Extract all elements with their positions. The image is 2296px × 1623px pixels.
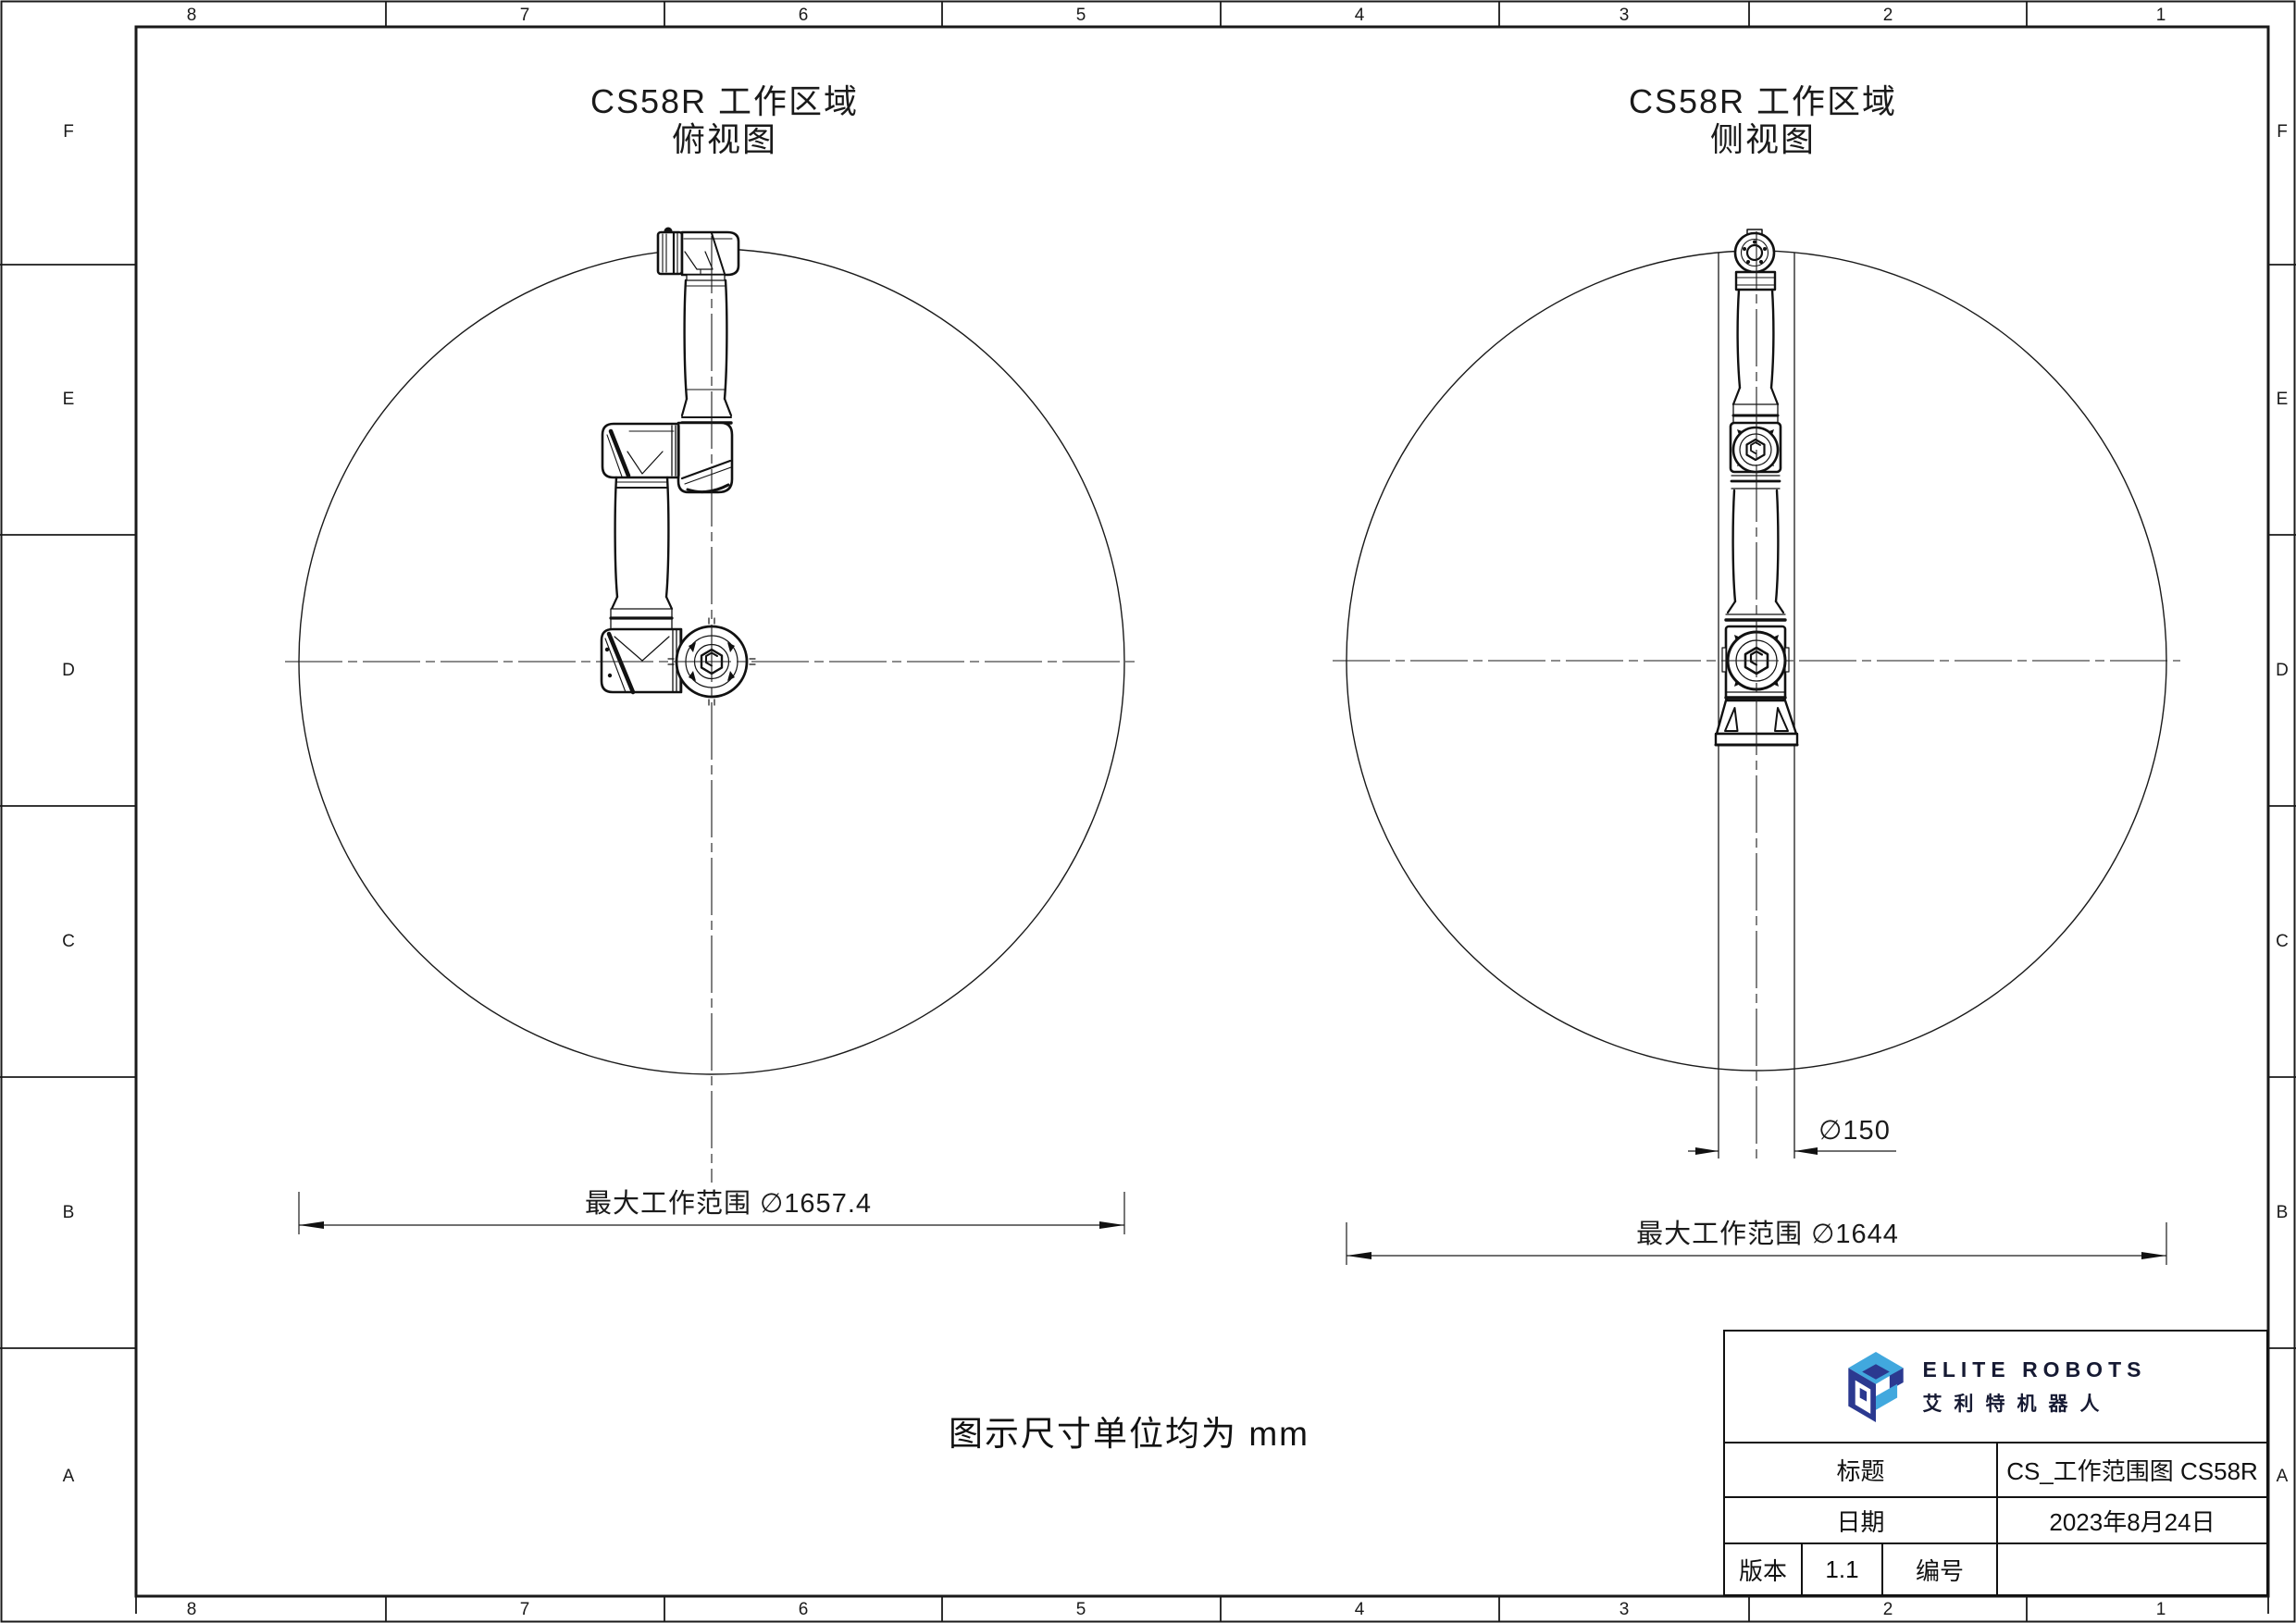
zone-row-left: C: [62, 932, 75, 951]
number-value: [1998, 1544, 2266, 1594]
row-ticks: [0, 265, 2296, 1348]
zone-col-top: 5: [1076, 6, 1086, 25]
zone-col-bottom: 3: [1620, 1600, 1630, 1619]
title-block-version-row: 版本 1.1 编号: [1725, 1544, 2266, 1594]
dim-label-base-diameter: ∅150: [1818, 1116, 1891, 1146]
zone-row-left: B: [63, 1203, 75, 1222]
title-label: 标题: [1725, 1443, 1998, 1496]
zone-row-right: F: [2277, 122, 2288, 142]
number-label: 编号: [1883, 1544, 1998, 1594]
zone-row-left: D: [62, 661, 75, 680]
dimension-base-diameter: [1688, 1147, 1896, 1155]
zone-col-bottom: 8: [187, 1600, 197, 1619]
robot-top-view: [602, 228, 755, 706]
zone-col-top: 7: [520, 6, 530, 25]
top-view-subtitle: 俯视图: [672, 120, 777, 158]
zone-col-top: 2: [1883, 6, 1893, 25]
brand-name-cn: 艾利特机器人: [1923, 1389, 2147, 1417]
zone-col-top: 8: [187, 6, 197, 25]
top-view-title: CS58R 工作区域: [590, 82, 859, 120]
zone-col-top: 3: [1620, 6, 1630, 25]
zone-col-bottom: 1: [2156, 1600, 2166, 1619]
zone-row-right: D: [2276, 661, 2289, 680]
bottom-zone-ticks: [136, 1596, 2268, 1621]
elite-robots-logo-icon: [1845, 1350, 1906, 1424]
zone-row-right: B: [2277, 1203, 2289, 1222]
brand-name-en: ELITE ROBOTS: [1923, 1357, 2147, 1382]
side-view-subtitle: 侧视图: [1710, 120, 1816, 158]
unit-note: 图示尺寸单位均为 mm: [949, 1406, 1309, 1456]
version-value: 1.1: [1803, 1544, 1883, 1594]
title-block-logo-row: ELITE ROBOTS 艾利特机器人: [1725, 1332, 2266, 1443]
zone-row-left: E: [63, 390, 75, 409]
zone-col-bottom: 2: [1883, 1600, 1893, 1619]
top-zone-ticks: [386, 2, 2027, 27]
zone-row-right: A: [2277, 1467, 2289, 1486]
zone-row-right: C: [2276, 932, 2289, 951]
title-block-date-row: 日期 2023年8月24日: [1725, 1498, 2266, 1544]
version-label: 版本: [1725, 1544, 1803, 1594]
date-value: 2023年8月24日: [1998, 1498, 2266, 1542]
side-view-title: CS58R 工作区域: [1629, 82, 1897, 120]
title-block-title-row: 标题 CS_工作范围图 CS58R: [1725, 1443, 2266, 1498]
zone-col-bottom: 5: [1076, 1600, 1086, 1619]
zone-col-top: 1: [2156, 6, 2166, 25]
zone-col-bottom: 7: [520, 1600, 530, 1619]
zone-row-left: A: [63, 1467, 75, 1486]
centerlines: [285, 231, 2180, 1183]
dim-label-side-view-max: 最大工作范围 ∅1644: [1636, 1219, 1899, 1249]
dim-label-top-view: 最大工作范围 ∅1657.4: [585, 1188, 872, 1219]
zone-col-bottom: 4: [1355, 1600, 1365, 1619]
date-label: 日期: [1725, 1498, 1998, 1542]
zone-col-top: 4: [1355, 6, 1365, 25]
zone-col-top: 6: [799, 6, 809, 25]
title-value: CS_工作范围图 CS58R: [1998, 1443, 2266, 1496]
title-block: ELITE ROBOTS 艾利特机器人 标题 CS_工作范围图 CS58R 日期…: [1723, 1330, 2268, 1596]
zone-col-bottom: 6: [799, 1600, 809, 1619]
zone-row-right: E: [2277, 390, 2289, 409]
zone-row-left: F: [63, 122, 74, 142]
